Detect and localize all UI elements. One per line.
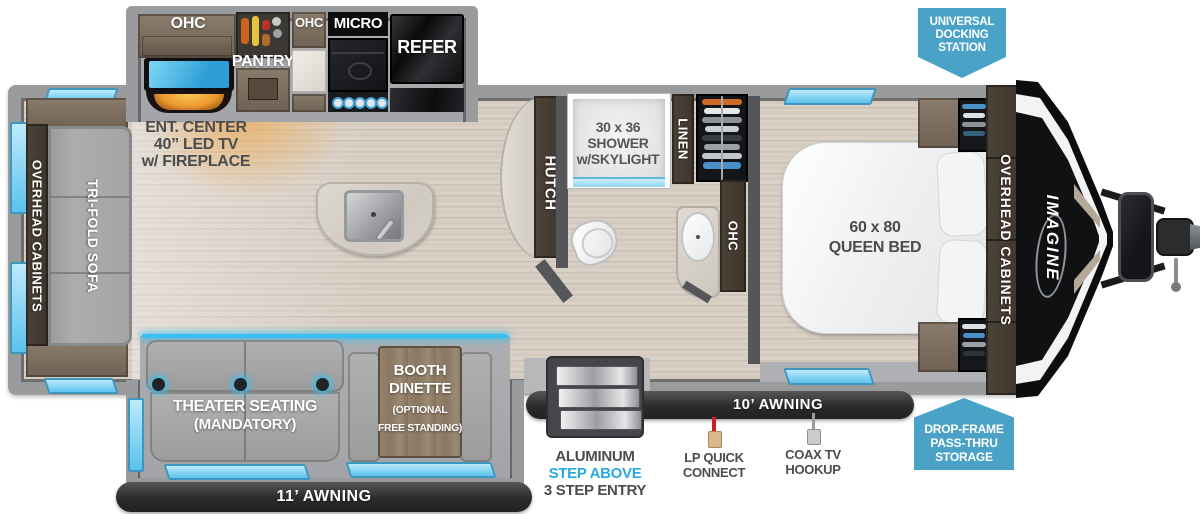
booth-line4: FREE STANDING) — [374, 419, 466, 437]
front-cap: IMAGINE — [1016, 66, 1200, 412]
docking-line2: DOCKING — [918, 29, 1006, 42]
shower-line3: w/SKYLIGHT — [568, 151, 668, 167]
wardrobe-top-item1 — [962, 104, 986, 109]
shower-line2: SHOWER — [568, 135, 668, 151]
rear-bottom-window — [43, 378, 118, 394]
theater-label: THEATER SEATING (MANDATORY) — [156, 398, 334, 434]
bath-wall-left — [556, 96, 568, 268]
theater-line1: THEATER SEATING — [156, 398, 334, 416]
lp-connect-fitting — [708, 431, 722, 448]
slide-bottom-window-left — [163, 464, 310, 480]
docking-line3: STATION — [918, 42, 1006, 55]
jack-handle-knob — [1171, 282, 1181, 292]
booth-line3: (OPTIONAL — [374, 401, 466, 419]
shower-glass-door — [573, 177, 665, 187]
pantry-label: PANTRY — [228, 54, 298, 71]
coax-line2: HOOKUP — [753, 462, 873, 477]
step-tread-2 — [558, 388, 640, 408]
jack-handle — [1174, 258, 1178, 284]
wardrobe-bot-item4 — [963, 351, 985, 356]
step-line1: ALUMINUM — [515, 448, 675, 465]
ohc-cabinet-doors — [142, 36, 232, 56]
closet-rod — [721, 96, 723, 180]
coax-fitting — [807, 429, 821, 445]
propane-cover — [1118, 192, 1154, 282]
step-tread-3 — [560, 410, 642, 430]
nightstand-bottom — [918, 322, 960, 372]
oven-window — [348, 62, 372, 80]
pantry-item-6 — [262, 34, 270, 46]
bed-size-line: 60 x 80 — [800, 218, 950, 238]
refer-lower-panel — [390, 88, 464, 112]
nightstand-top — [918, 98, 960, 148]
linen-label: LINEN — [676, 118, 691, 160]
wardrobe-bot-item1 — [962, 324, 986, 329]
shower-label: 30 x 36 SHOWER w/SKYLIGHT — [568, 119, 668, 167]
booth-dinette-label: BOOTH DINETTE (OPTIONAL FREE STANDING) — [374, 362, 466, 437]
ohc-mid-label: OHC — [292, 16, 326, 30]
step-tread-1 — [556, 366, 638, 386]
bath-wall-right — [748, 96, 760, 364]
awning-10-label: 10’ AWNING — [646, 397, 910, 413]
step-line3: 3 STEP ENTRY — [515, 482, 675, 499]
pantry-item-2 — [252, 16, 259, 46]
wardrobe-top-item4 — [963, 131, 985, 136]
ent-center-line3: w/ FIREPLACE — [116, 153, 276, 170]
hitch-tongue-tip — [1190, 224, 1200, 250]
refer-label: REFER — [390, 38, 464, 57]
slide-left-window — [128, 398, 144, 472]
drop-frame-storage-badge: DROP-FRAME PASS-THRU STORAGE — [914, 398, 1014, 470]
rear-end-table-bottom — [26, 342, 128, 377]
counter-lower-cabinet — [292, 94, 326, 112]
tri-fold-sofa-label: TRI-FOLD SOFA — [85, 179, 101, 293]
range-oven — [328, 38, 388, 92]
step-entry-label: ALUMINUM STEP ABOVE 3 STEP ENTRY — [515, 448, 675, 499]
hitch-coupler — [1156, 218, 1194, 256]
storage-line2: PASS-THRU — [914, 436, 1014, 450]
slide-bottom-window-right — [345, 462, 496, 478]
entry-steps — [546, 356, 644, 438]
rear-overhead-cabinets-label: OVERHEAD CABINETS — [30, 160, 45, 312]
oven-door-line — [332, 52, 384, 54]
tv-screen — [149, 61, 229, 88]
bed-type-line: QUEEN BED — [800, 238, 950, 258]
bath-wardrobe — [696, 94, 748, 182]
vanity-drain — [696, 235, 700, 239]
bath-ohc-label: OHC — [726, 221, 741, 251]
shower-line1: 30 x 36 — [568, 119, 668, 135]
step-line2: STEP ABOVE — [515, 465, 675, 482]
ent-center-line1: ENT. CENTER — [116, 119, 276, 136]
ohc-left-label: OHC — [150, 16, 226, 33]
bedroom-overhead-label: OVERHEAD CABINETS — [998, 154, 1014, 326]
booth-line1: BOOTH — [374, 362, 466, 380]
booth-line2: DINETTE — [374, 380, 466, 398]
wardrobe-top-item2 — [963, 113, 985, 118]
sink-drain — [371, 212, 376, 217]
wardrobe-top-item3 — [962, 122, 986, 127]
range-knob-5 — [376, 97, 388, 109]
theater-line2: (MANDATORY) — [156, 416, 334, 434]
pantry-item-1 — [241, 18, 249, 44]
pantry-item-3 — [262, 20, 270, 30]
queen-bed-label: 60 x 80 QUEEN BED — [800, 218, 950, 258]
cupholder-center — [234, 378, 247, 391]
coax-label: COAX TV HOOKUP — [753, 447, 873, 477]
coax-line1: COAX TV — [753, 447, 873, 462]
awning-11-label: 11’ AWNING — [116, 489, 532, 506]
slide-glow-edge — [142, 334, 508, 338]
pantry-lower-cabinet — [236, 68, 290, 112]
imagine-logo: IMAGINE — [1042, 195, 1062, 282]
pantry-shelves — [236, 12, 290, 58]
ent-center-line2: 40” LED TV — [116, 136, 276, 153]
ent-center-label: ENT. CENTER 40” LED TV w/ FIREPLACE — [116, 119, 276, 170]
kitchen-counter — [292, 50, 326, 92]
docking-line1: UNIVERSAL — [918, 16, 1006, 29]
bedroom-top-window — [783, 88, 877, 105]
cupholder-right — [316, 378, 329, 391]
wardrobe-bot-item3 — [962, 342, 986, 347]
fireplace-flame — [154, 94, 224, 110]
universal-docking-badge: UNIVERSAL DOCKING STATION — [918, 8, 1006, 78]
cupholder-left — [152, 378, 165, 391]
fireplace — [146, 91, 232, 113]
wardrobe-bot-item2 — [963, 333, 985, 338]
rv-floorplan: OVERHEAD CABINETS TRI-FOLD SOFA OHC PANT… — [0, 0, 1200, 514]
pantry-item-5 — [273, 29, 282, 38]
storage-line3: STORAGE — [914, 450, 1014, 464]
pantry-item-4 — [272, 17, 281, 26]
range-knob-row — [328, 92, 388, 112]
storage-line1: DROP-FRAME — [914, 422, 1014, 436]
bedroom-bottom-window — [783, 368, 875, 385]
micro-label: MICRO — [328, 16, 388, 32]
pantry-drawer — [248, 78, 278, 100]
